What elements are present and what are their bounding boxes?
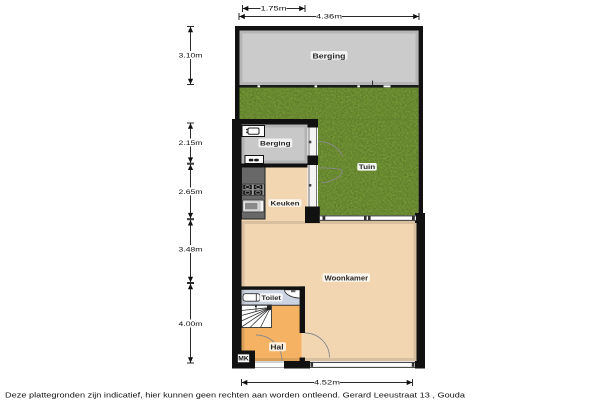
svg-text:3.48m: 3.48m bbox=[179, 246, 203, 253]
svg-text:Berging: Berging bbox=[313, 51, 346, 60]
svg-text:Toilet: Toilet bbox=[261, 296, 281, 302]
svg-text:4.52m: 4.52m bbox=[314, 379, 340, 386]
svg-text:4.00m: 4.00m bbox=[179, 321, 203, 328]
svg-text:Hal: Hal bbox=[270, 344, 283, 351]
svg-text:MK: MK bbox=[238, 356, 249, 363]
svg-text:Berging: Berging bbox=[260, 140, 291, 147]
svg-text:Tuin: Tuin bbox=[359, 164, 376, 171]
svg-text:2.15m: 2.15m bbox=[179, 140, 203, 147]
svg-text:Keuken: Keuken bbox=[271, 201, 300, 208]
svg-text:Deze plattegronden zijn indica: Deze plattegronden zijn indicatief, hier… bbox=[5, 390, 466, 399]
svg-text:2.65m: 2.65m bbox=[179, 189, 203, 196]
svg-text:3.10m: 3.10m bbox=[179, 52, 203, 59]
svg-text:4.36m: 4.36m bbox=[316, 13, 342, 20]
svg-text:Woonkamer: Woonkamer bbox=[325, 276, 369, 283]
svg-text:1.75m: 1.75m bbox=[261, 5, 287, 12]
